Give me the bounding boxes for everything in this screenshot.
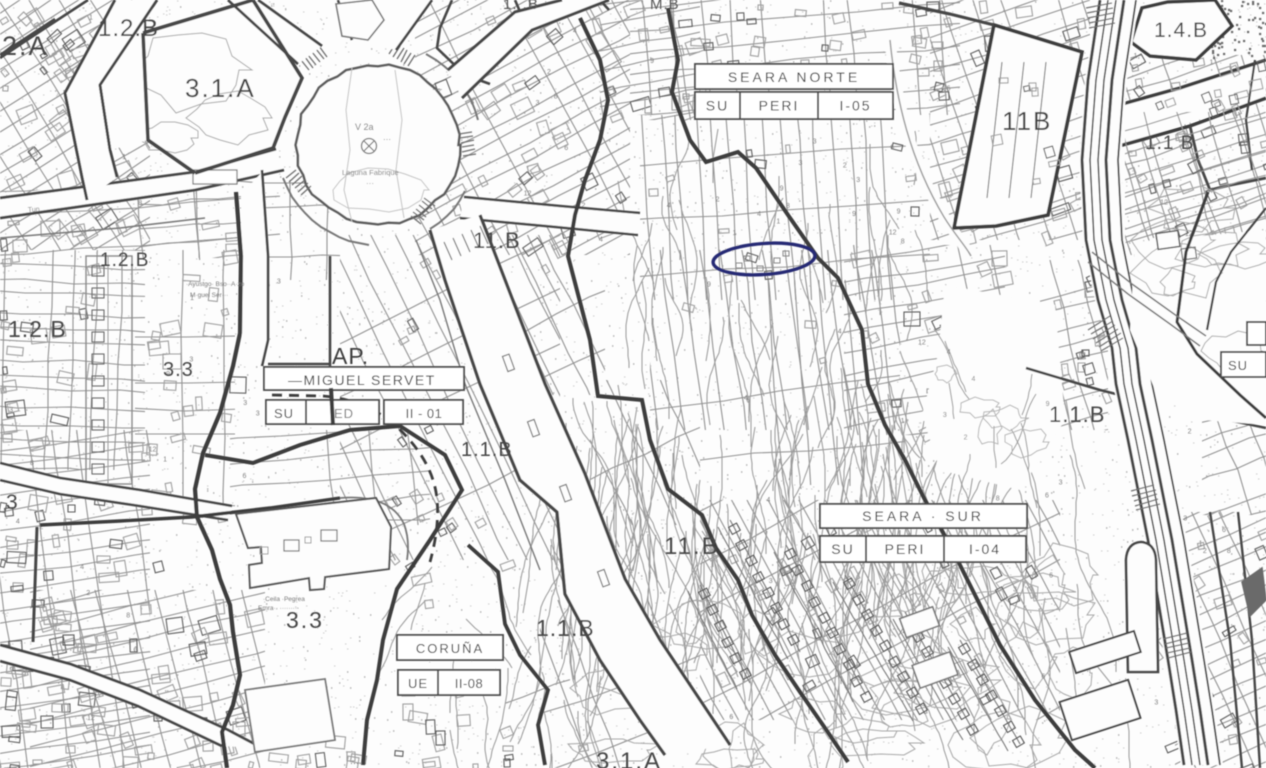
svg-text:6: 6 [133, 647, 137, 654]
svg-text:2: 2 [1203, 548, 1207, 555]
svg-text:3: 3 [856, 177, 860, 184]
svg-text:1.2.B: 1.2.B [98, 15, 159, 42]
svg-text:·Ceila ·Pegrea: ·Ceila ·Pegrea [263, 596, 305, 603]
svg-text:3: 3 [256, 410, 260, 417]
svg-text:12: 12 [889, 229, 897, 236]
svg-text:8: 8 [126, 612, 130, 619]
svg-text:3: 3 [9, 407, 13, 414]
svg-text:9: 9 [707, 281, 711, 288]
svg-text:12: 12 [149, 446, 157, 453]
svg-text:6: 6 [729, 714, 733, 721]
svg-text:1.1.B: 1.1.B [461, 439, 513, 461]
svg-text:1.1.B: 1.1.B [536, 615, 595, 641]
svg-text:9: 9 [650, 58, 654, 65]
svg-text:AP.: AP. [332, 343, 369, 369]
svg-text:3.1.A: 3.1.A [596, 748, 662, 768]
svg-text:2: 2 [547, 69, 551, 76]
svg-text:4: 4 [744, 395, 748, 402]
svg-text:4: 4 [766, 497, 770, 504]
svg-text:3.3: 3.3 [163, 359, 194, 381]
svg-text:SU: SU [831, 541, 854, 557]
svg-text:3: 3 [1059, 480, 1063, 487]
svg-text:3: 3 [799, 160, 803, 167]
svg-text:3: 3 [243, 400, 247, 407]
svg-text:SU: SU [1228, 358, 1248, 373]
svg-text:SEARA NORTE: SEARA NORTE [728, 69, 860, 85]
svg-text:···: ··· [366, 179, 374, 188]
svg-text:8: 8 [786, 203, 790, 210]
svg-text:8: 8 [138, 200, 142, 207]
svg-text:3: 3 [1154, 699, 1158, 706]
svg-text:4: 4 [757, 211, 761, 218]
svg-text:3.3: 3.3 [286, 607, 324, 633]
svg-text:2: 2 [1188, 429, 1192, 436]
svg-text:SU: SU [274, 406, 294, 421]
svg-text:1.2.B: 1.2.B [100, 250, 149, 271]
svg-text:II-08: II-08 [455, 676, 484, 691]
svg-text:CORUÑA: CORUÑA [416, 641, 484, 656]
svg-text:2.A: 2.A [2, 31, 49, 61]
svg-text:3: 3 [1183, 516, 1187, 523]
svg-text:8: 8 [969, 612, 973, 619]
svg-text:1: 1 [1134, 53, 1138, 60]
svg-text:⋯: ⋯ [383, 135, 391, 144]
svg-text:6: 6 [947, 85, 951, 92]
svg-text:9: 9 [85, 315, 89, 322]
svg-text:1.1.B: 1.1.B [1049, 402, 1105, 427]
svg-text:6: 6 [1049, 572, 1053, 579]
svg-text:4: 4 [838, 328, 842, 335]
svg-text:SEARA · SUR: SEARA · SUR [862, 508, 984, 524]
svg-text:6: 6 [890, 144, 894, 151]
svg-text:8: 8 [996, 495, 1000, 502]
svg-text:M.B: M.B [650, 0, 680, 13]
svg-text:11B: 11B [1002, 106, 1052, 136]
svg-text:3: 3 [943, 412, 947, 419]
svg-text:8: 8 [901, 238, 905, 245]
svg-text:4: 4 [573, 28, 577, 35]
svg-text:4: 4 [667, 202, 671, 209]
svg-text:M·guel Ser···: M·guel Ser··· [190, 292, 228, 299]
svg-text:6: 6 [1222, 527, 1226, 534]
svg-text:1.2.B: 1.2.B [8, 316, 67, 342]
svg-text:I-04: I-04 [969, 541, 1001, 557]
svg-text:6: 6 [1045, 493, 1049, 500]
svg-text:3: 3 [536, 100, 540, 107]
svg-text:1. .B: 1. .B [503, 0, 539, 13]
svg-text:12: 12 [524, 190, 532, 197]
svg-text:2: 2 [86, 590, 90, 597]
svg-text:Laguna Fabrique: Laguna Fabrique [342, 168, 399, 177]
svg-text:4: 4 [947, 349, 951, 356]
svg-text:9: 9 [897, 208, 901, 215]
svg-text:Tun: Tun [28, 206, 40, 214]
svg-text:1: 1 [901, 418, 905, 425]
svg-text:2: 2 [964, 435, 968, 442]
svg-text:·Ayustgo· Bso··A·zo: ·Ayustgo· Bso··A·zo [186, 281, 245, 288]
svg-text:⋯··: ⋯·· [350, 758, 368, 768]
svg-text:8: 8 [554, 94, 558, 101]
svg-text:ED: ED [334, 406, 354, 421]
svg-text:SU: SU [706, 98, 729, 114]
svg-text:3: 3 [277, 279, 281, 286]
svg-text:6: 6 [1041, 673, 1045, 680]
svg-text:8: 8 [1227, 548, 1231, 555]
svg-text:1: 1 [1209, 60, 1213, 67]
svg-text:V 2a: V 2a [355, 122, 374, 132]
svg-text:4: 4 [80, 564, 84, 571]
svg-text:3: 3 [6, 491, 19, 514]
svg-text:4: 4 [972, 376, 976, 383]
svg-text:9: 9 [780, 185, 784, 192]
svg-text:11.B: 11.B [473, 228, 521, 253]
svg-text:1.1 B: 1.1 B [1145, 133, 1194, 154]
svg-text:11.B: 11.B [664, 533, 720, 560]
svg-text:3: 3 [813, 138, 817, 145]
svg-text:PERI: PERI [885, 541, 926, 557]
svg-text:6: 6 [243, 473, 247, 480]
svg-text:8: 8 [30, 460, 34, 467]
svg-text:4: 4 [16, 519, 20, 526]
svg-text:1: 1 [163, 457, 167, 464]
svg-text:2: 2 [843, 162, 847, 169]
svg-text:1: 1 [776, 218, 780, 225]
svg-text:1: 1 [89, 14, 93, 21]
svg-text:12: 12 [87, 715, 95, 722]
svg-text:·⋯: ·⋯ [432, 85, 443, 94]
svg-text:2: 2 [716, 196, 720, 203]
svg-text:1: 1 [122, 154, 126, 161]
svg-text:—MIGUEL SERVET: —MIGUEL SERVET [288, 372, 436, 388]
svg-text:3: 3 [769, 578, 773, 585]
svg-text:3.1.A: 3.1.A [185, 73, 256, 103]
svg-text:6: 6 [564, 145, 568, 152]
svg-text:9: 9 [852, 211, 856, 218]
svg-text:I-05: I-05 [839, 98, 871, 114]
svg-text:PERI: PERI [759, 98, 800, 114]
svg-text:3: 3 [1013, 586, 1017, 593]
svg-text:12: 12 [918, 340, 926, 347]
svg-text:1: 1 [1199, 540, 1203, 547]
svg-text:4: 4 [599, 237, 603, 244]
svg-text:1.4.B: 1.4.B [1154, 19, 1208, 42]
svg-text:1: 1 [732, 230, 736, 237]
svg-text:II - 01: II - 01 [406, 406, 443, 421]
svg-text:UE: UE [408, 676, 428, 691]
